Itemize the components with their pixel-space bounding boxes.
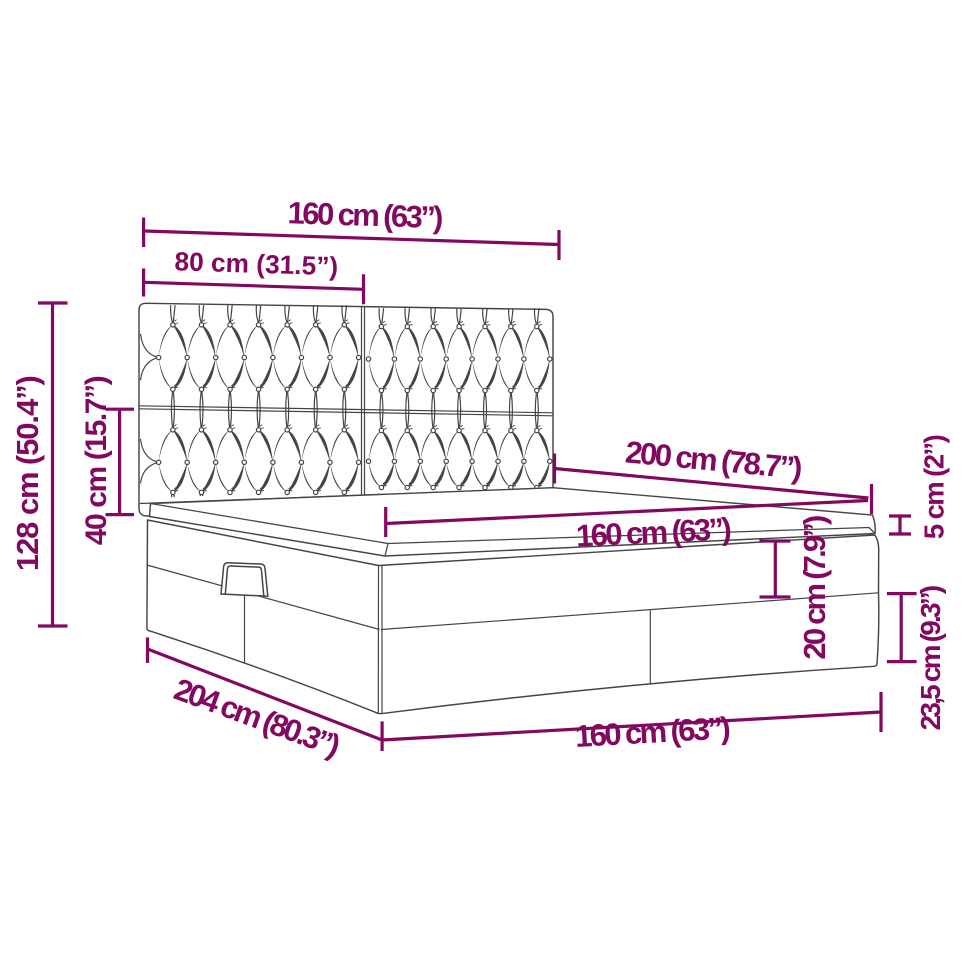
svg-text:160 cm (63”): 160 cm (63”) (287, 195, 442, 235)
svg-text:128 cm (50.4”): 128 cm (50.4”) (10, 376, 45, 571)
svg-text:5 cm (2”): 5 cm (2”) (919, 435, 950, 539)
svg-text:40 cm (15.7”): 40 cm (15.7”) (80, 376, 113, 545)
svg-text:80 cm (31.5”): 80 cm (31.5”) (174, 246, 339, 281)
svg-text:20 cm (7.9”): 20 cm (7.9”) (797, 516, 832, 660)
svg-text:23,5 cm (9.3”): 23,5 cm (9.3”) (915, 586, 946, 730)
svg-text:160 cm (63”): 160 cm (63”) (575, 511, 731, 553)
